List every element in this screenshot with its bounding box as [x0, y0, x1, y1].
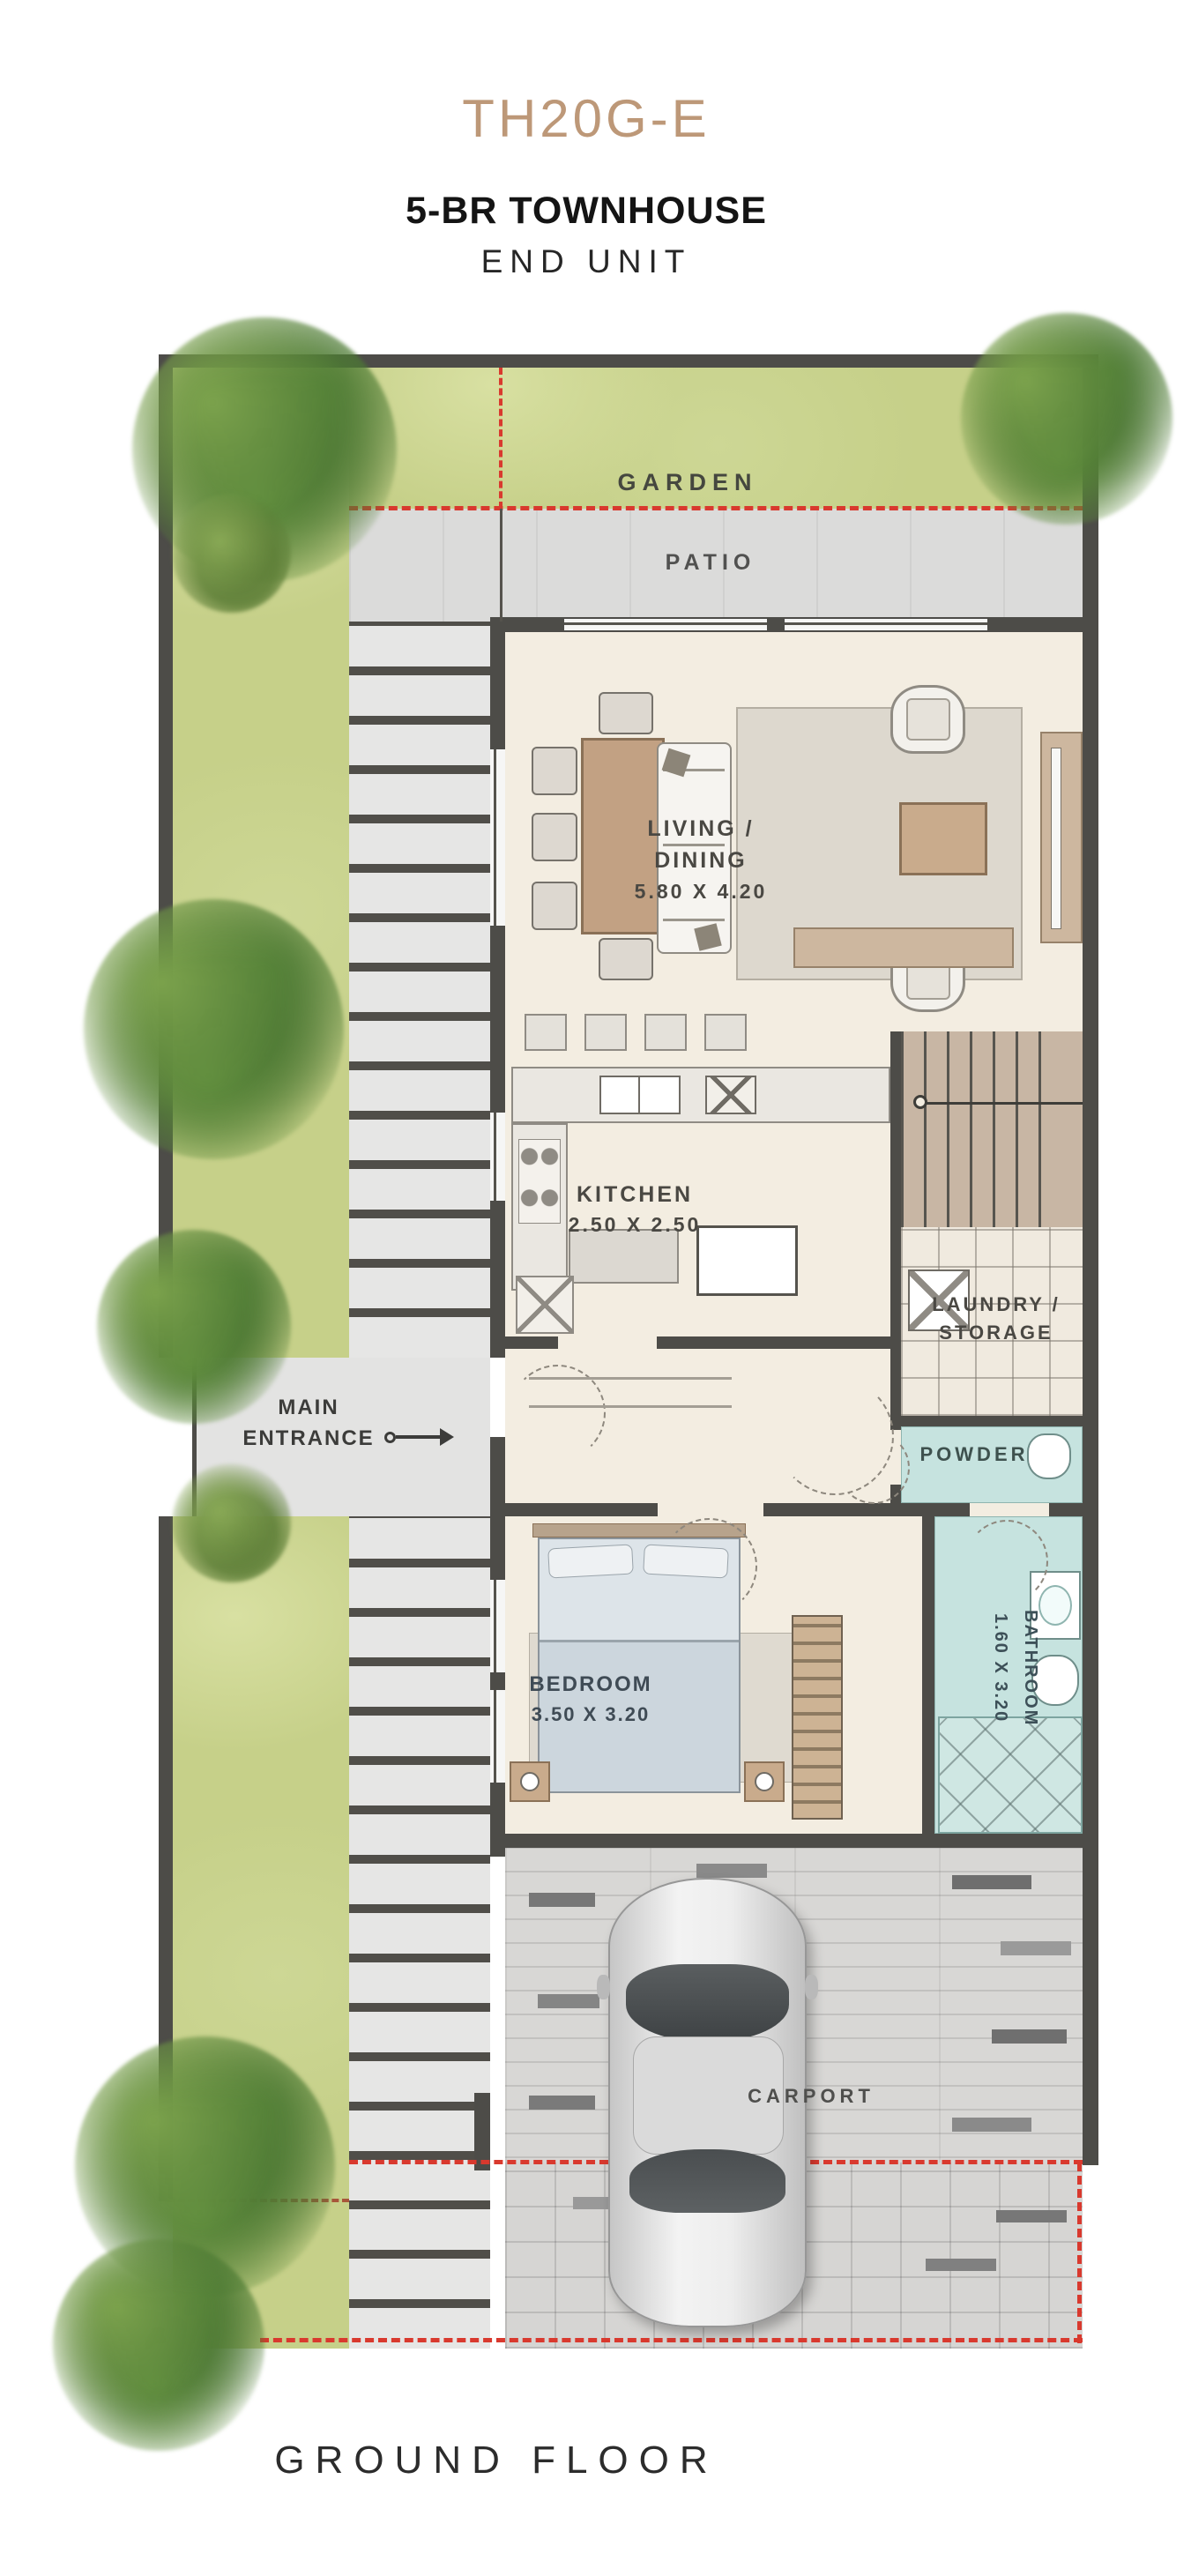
bar-stool [644, 1014, 687, 1051]
paver-brick [529, 1893, 595, 1907]
carport-label: CARPORT [679, 2082, 943, 2111]
tree [961, 313, 1172, 525]
tree [53, 2239, 264, 2451]
tree [84, 899, 344, 1159]
window [490, 749, 505, 926]
hall-bedroom-wall [922, 1503, 970, 1516]
paver-brick [1001, 1941, 1071, 1955]
sideboard [793, 927, 1014, 968]
door-swing-arc [661, 1518, 757, 1614]
powder-top-wall [901, 1416, 1083, 1426]
kitchen-hall-wall [505, 1336, 558, 1349]
car-windshield [626, 1964, 789, 2042]
window [490, 1580, 505, 1672]
wardrobe [792, 1615, 843, 1820]
floor-plan: GARDEN PATIO LIVING / DINING 5.80 X 4.20… [159, 354, 1098, 2349]
paver-brick [926, 2259, 996, 2271]
bed-blanket-fold [540, 1640, 739, 1642]
kitchen-dims: 2.50 X 2.50 [502, 1210, 767, 1240]
floor-line [529, 1405, 732, 1408]
nightstand-lamp [520, 1772, 540, 1791]
living-dining-label: LIVING / DINING 5.80 X 4.20 [569, 813, 833, 906]
dining-chair [532, 747, 577, 795]
bar-stool [584, 1014, 627, 1051]
sliding-door-glass [785, 619, 987, 630]
laundry-storage-label: LAUNDRY / STORAGE [864, 1291, 1128, 1347]
unit-type-subtitle: 5-BR TOWNHOUSE [0, 190, 1172, 233]
bedroom-label: BEDROOM 3.50 X 3.20 [458, 1670, 723, 1729]
unit-code-title: TH20G-E [0, 88, 1172, 149]
dining-chair [599, 692, 653, 734]
tv-console [1040, 732, 1083, 943]
powder-label: POWDER [842, 1441, 1106, 1469]
kitchen-label: KITCHEN 2.50 X 2.50 [502, 1179, 767, 1240]
arrow-head [440, 1428, 454, 1446]
unit-variant: END UNIT [0, 243, 1172, 280]
kitchen-sink-divider [638, 1076, 640, 1114]
garden-division-line [500, 509, 502, 622]
bedroom-dims: 3.50 X 3.20 [458, 1701, 723, 1729]
armchair-seat [906, 698, 950, 741]
kitchen-counter-top [511, 1067, 890, 1123]
paver-brick [529, 2096, 595, 2110]
carport-top-wall [490, 1834, 1083, 1848]
sliding-door-glass [564, 619, 767, 630]
paver-brick [952, 1875, 1031, 1889]
floor-title: GROUND FLOOR [0, 2438, 993, 2483]
bar-stool [525, 1014, 567, 1051]
garden-division-dashed [499, 368, 502, 509]
walkway-top [349, 622, 490, 1358]
car-mirror [805, 1975, 818, 1999]
plot-boundary-dashed [349, 506, 1083, 510]
paver-brick [952, 2118, 1031, 2132]
bush [172, 1463, 291, 1582]
bar-stool [704, 1014, 747, 1051]
stair-rail [926, 1102, 1083, 1105]
patio-label: PATIO [578, 547, 843, 578]
hall-bedroom-wall [1049, 1503, 1083, 1516]
bathroom-label: BATHROOM 1.60 X 3.20 [979, 1558, 1046, 1778]
stair-newel-post [913, 1095, 927, 1109]
walkway-carport-stub [474, 2093, 490, 2170]
bedroom-bathroom-wall [922, 1516, 934, 1834]
stair-laundry-wall [890, 1031, 901, 1430]
floor-tile-x [516, 1276, 574, 1334]
sofa-cushion [663, 919, 725, 921]
nightstand-lamp [755, 1772, 774, 1791]
paver-brick [992, 2029, 1067, 2044]
kitchen-hall-wall [657, 1336, 890, 1349]
stair-landing [1047, 1031, 1083, 1227]
kitchen-sink [599, 1076, 681, 1114]
car-rear-window [629, 2149, 785, 2213]
walkway-bottom [349, 1516, 490, 2349]
paver-brick [538, 1994, 599, 2008]
tv-screen [1051, 748, 1061, 929]
house-left-wall-upper [490, 617, 505, 1358]
prep-counter-x [705, 1076, 756, 1114]
carport-boundary-dashed-right [1077, 2163, 1082, 2343]
plot-bottom-boundary-dashed [260, 2338, 1083, 2342]
boundary-wall-right [1083, 354, 1098, 2165]
car-mirror [597, 1975, 610, 1999]
hall-bedroom-wall [763, 1503, 922, 1516]
paver-brick [996, 2210, 1067, 2222]
coffee-table [899, 802, 987, 875]
bed-pillow [547, 1545, 634, 1579]
garden-label: GARDEN [555, 465, 820, 500]
bush [172, 494, 291, 613]
main-entrance-label: MAIN ENTRANCE [176, 1393, 441, 1455]
floor-line [529, 1377, 732, 1380]
dining-chair [599, 938, 653, 980]
living-dims: 5.80 X 4.20 [569, 877, 833, 906]
hall-bedroom-wall [490, 1503, 658, 1516]
paver-brick [696, 1864, 767, 1878]
